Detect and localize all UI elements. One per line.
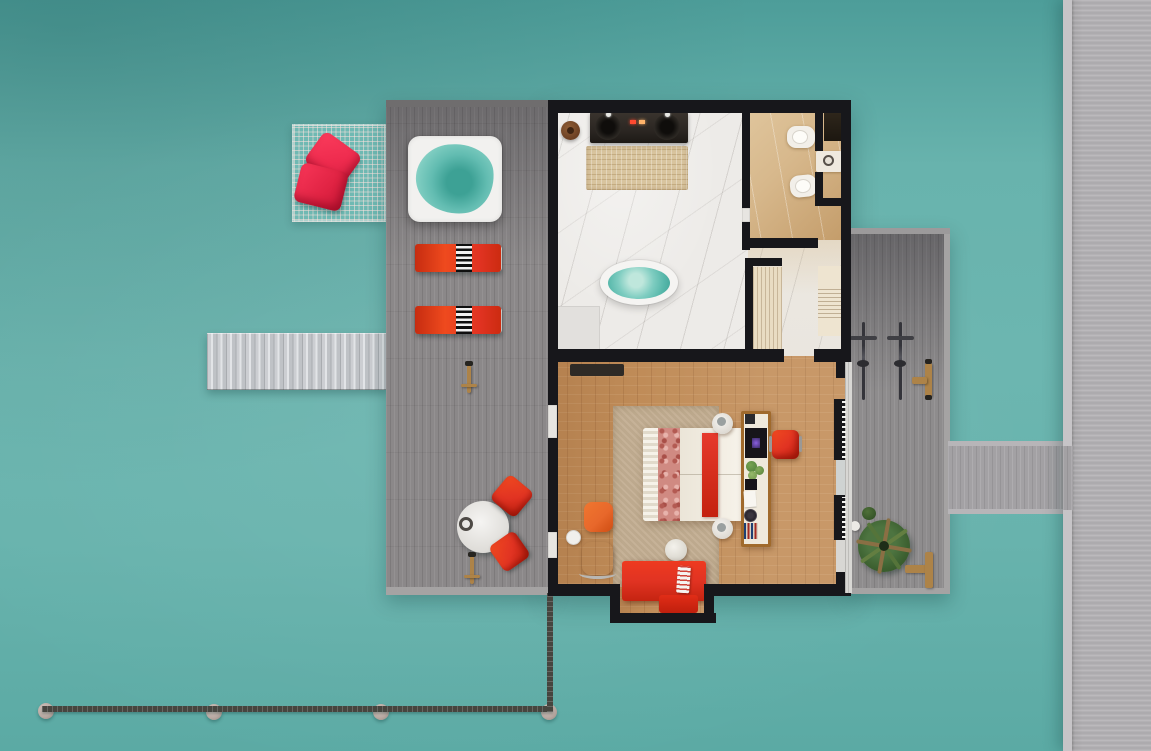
- water-access-stairs: [207, 333, 388, 390]
- nightstand-item-1: [717, 417, 726, 426]
- boardwalk-vertical: [547, 593, 553, 712]
- bicycle-1-handlebar: [850, 336, 877, 340]
- outdoor-shower-head: [925, 359, 932, 364]
- console-tray: [745, 479, 757, 490]
- side-table: [566, 530, 581, 545]
- wooden-stool: [561, 121, 580, 140]
- desk-chair-arm-left: [769, 436, 772, 452]
- bicycle-2-handlebar: [887, 336, 914, 340]
- outdoor-shower-arm: [912, 377, 927, 384]
- desk-chair-arm-right: [799, 436, 802, 452]
- wall-wc-stub-2: [815, 172, 823, 206]
- deck-lamp-2-base: [464, 575, 480, 578]
- armchair-base: [579, 568, 616, 579]
- main-jetty: [1063, 0, 1151, 751]
- vanity-rug: [586, 146, 688, 190]
- lounger-towel-2: [456, 306, 472, 334]
- bridge-bottom-edge: [948, 509, 1063, 514]
- sun-deck-bottom-edge: [386, 587, 550, 595]
- wall-wc-stub-3: [823, 198, 848, 206]
- glass-door-pane-1: [836, 460, 845, 495]
- bicycle-2-seat: [894, 360, 906, 367]
- bidet: [789, 174, 818, 199]
- main-jetty-edge: [1063, 0, 1072, 751]
- vanity-led-red: [630, 120, 636, 124]
- palm-trunk: [879, 541, 889, 551]
- bridge-jetty-junction: [1063, 446, 1073, 510]
- bed-pillow-ruffle: [643, 428, 658, 521]
- wall-right-bedroom-1: [836, 362, 845, 378]
- wall-bottom-right: [704, 584, 851, 596]
- deck-door-2: [548, 532, 557, 558]
- wall-left: [548, 100, 558, 594]
- deck-lamp-1-base: [461, 384, 477, 387]
- closet-shelving: [753, 267, 782, 352]
- wall-closet-top: [745, 258, 782, 266]
- wall-wc-stub-1: [815, 113, 823, 151]
- rear-deck-right-edge: [944, 228, 950, 594]
- nightstand-item-2: [717, 523, 726, 532]
- deck-lamp-1-cap: [465, 361, 473, 366]
- desk-chair: [772, 430, 799, 459]
- vanity-led-amber: [639, 120, 645, 124]
- bathtub-water: [608, 267, 670, 299]
- toilet: [787, 126, 815, 148]
- console-paper: [743, 491, 756, 508]
- glass-door-blind-2: [842, 497, 846, 538]
- rear-deck-top-edge: [846, 228, 950, 234]
- vanity-sink-left: [595, 114, 621, 140]
- deck-to-jetty-bridge: [948, 445, 1063, 511]
- wall-right-upper: [841, 104, 851, 362]
- bridge-top-edge: [948, 441, 1063, 446]
- sun-deck-top-edge: [386, 100, 550, 107]
- villa-floor-plan-scene: [0, 0, 1151, 751]
- wall-wc-hall: [745, 238, 818, 248]
- deck-lamp-2: [470, 556, 474, 584]
- bed-runner: [702, 433, 718, 517]
- outdoor-shower-foot: [925, 395, 932, 400]
- boardwalk-horizontal: [42, 706, 553, 712]
- shrub: [862, 507, 876, 520]
- wall-top: [548, 100, 851, 113]
- wall-bay-bottom: [610, 613, 716, 623]
- console-box: [745, 414, 755, 424]
- lounger-towel-1: [456, 244, 472, 272]
- deck-lamp-2-cap: [468, 552, 476, 557]
- daybed-seat: [659, 595, 698, 613]
- bicycle-1-seat: [857, 360, 869, 367]
- deck-lamp-1: [467, 365, 471, 393]
- pouf: [665, 539, 687, 561]
- wardrobe-slats: [818, 289, 842, 318]
- speaker: [744, 509, 757, 522]
- rear-deck-bottom-edge: [846, 588, 950, 594]
- wc-washbasin-bowl: [823, 155, 834, 166]
- door-mat: [570, 364, 624, 376]
- outdoor-table-tray: [459, 517, 473, 531]
- tv: [745, 428, 767, 458]
- wall-bay-right: [704, 584, 714, 623]
- glass-door-pane-2: [836, 540, 845, 572]
- wall-closet-left: [745, 258, 753, 362]
- wood-bench-seat: [905, 565, 927, 573]
- wc-door-gap: [742, 208, 750, 222]
- vanity-sink-right: [654, 114, 680, 140]
- sliding-door-track: [845, 362, 852, 593]
- wood-bench-back: [925, 552, 933, 588]
- wall-bath-wc-a: [742, 104, 750, 210]
- wall-right-bedroom-4: [836, 572, 845, 593]
- bed-floral-throw: [658, 428, 680, 521]
- minibar-bottles: [744, 523, 758, 539]
- ottoman: [584, 502, 613, 532]
- glass-door-blind-1: [842, 401, 846, 458]
- daybed-pillow: [676, 566, 691, 594]
- deck-door-1: [548, 405, 557, 438]
